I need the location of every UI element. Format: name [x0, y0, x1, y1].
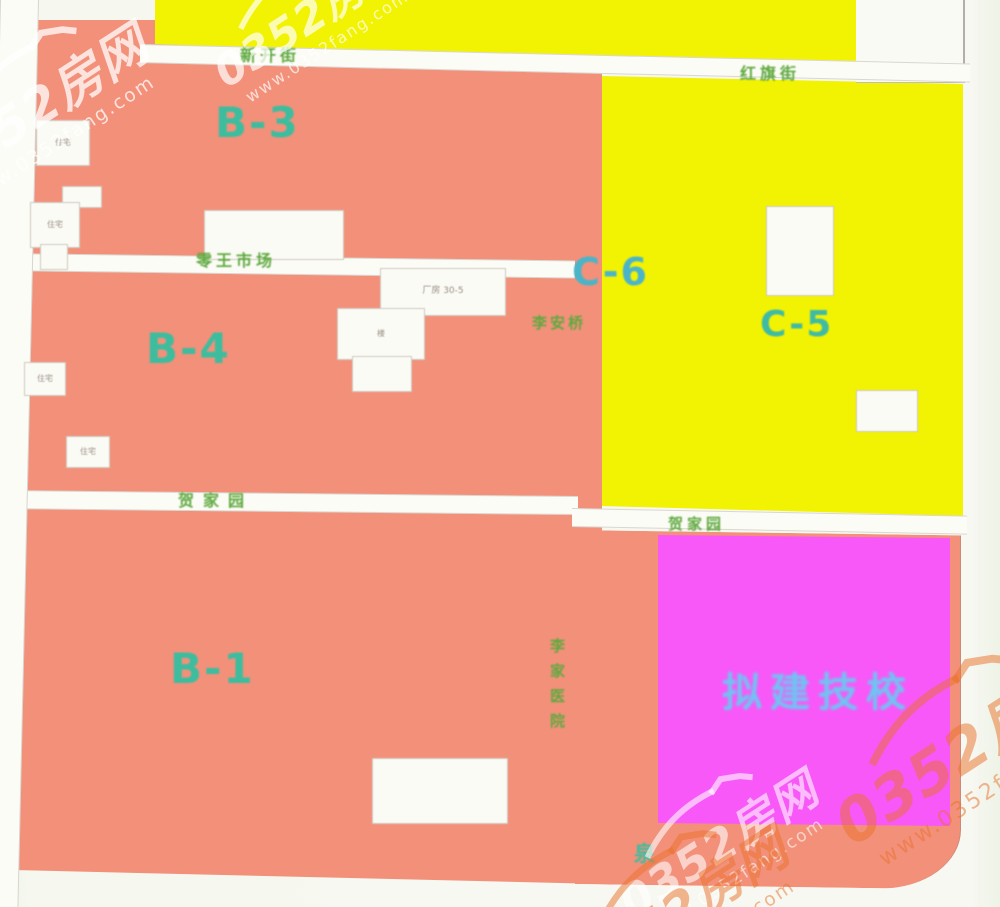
place-label-below-c6: 李安桥	[532, 312, 586, 333]
zone-c5-yellow	[602, 76, 963, 518]
building-small-4: 住宅	[66, 436, 110, 468]
zone-label-c6: C-6	[572, 250, 649, 294]
road-label-top-left: 新开街	[240, 42, 300, 66]
zone-label-b3: B-3	[215, 98, 300, 147]
building-small-1: 住宅	[36, 120, 90, 166]
building-cluster-low	[352, 356, 412, 392]
road-label-lower-right: 贺家园	[668, 513, 725, 534]
building-c5-small	[856, 390, 918, 432]
building-small-2b: 住宅	[30, 202, 80, 248]
building-small-3: 住宅	[24, 362, 66, 396]
zone-label-b1: B-1	[170, 644, 255, 693]
road-label-lower-left: 贺家园	[178, 487, 253, 511]
building-small-2c	[40, 244, 68, 270]
road-label-top-right: 红旗街	[740, 60, 800, 84]
building-c5-tall	[766, 206, 834, 296]
building-cluster-mid: 楼	[337, 308, 425, 360]
zone-label-b4: B-4	[146, 324, 231, 373]
zone-label-pink: 拟建技校	[722, 660, 914, 718]
planning-map: 住宅 住宅 住宅 住宅 厂房 30-5 楼 B-3 B-4 B-1 C-6 C-…	[0, 0, 1000, 907]
building-bottom-rect	[372, 758, 508, 824]
place-label-bottom: 泉	[634, 838, 655, 868]
zone-label-c5: C-5	[760, 304, 833, 345]
road-label-middle: 零王市场	[196, 247, 276, 271]
road-label-vertical: 李家医院	[547, 638, 568, 738]
